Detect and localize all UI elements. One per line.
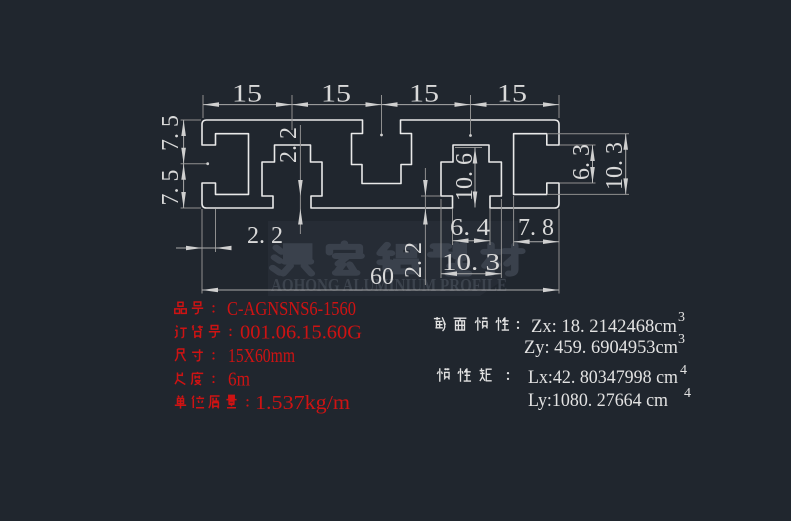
svg-text:2. 2: 2. 2 — [276, 127, 302, 163]
svg-text:2. 2: 2. 2 — [247, 223, 283, 249]
svg-text:Zx: 18. 2142468cm: Zx: 18. 2142468cm — [531, 316, 677, 337]
svg-text:001.06.15.60G: 001.06.15.60G — [240, 323, 362, 344]
svg-text:15X60mm: 15X60mm — [228, 346, 295, 367]
svg-text:10. 6: 10. 6 — [452, 153, 478, 201]
svg-text:2. 2: 2. 2 — [401, 242, 427, 278]
svg-text:3: 3 — [678, 310, 685, 325]
svg-text:3: 3 — [678, 332, 685, 347]
svg-text:4: 4 — [680, 363, 687, 378]
svg-text:C-AGNSNS6-1560: C-AGNSNS6-1560 — [227, 299, 356, 320]
svg-text:Ly:1080. 27664 cm: Ly:1080. 27664 cm — [528, 390, 668, 411]
svg-text:7. 5: 7. 5 — [158, 170, 184, 206]
svg-text:7. 8: 7. 8 — [518, 215, 554, 241]
svg-text:6m: 6m — [228, 370, 250, 391]
svg-text:10. 3: 10. 3 — [602, 142, 628, 190]
svg-text:15: 15 — [232, 81, 262, 108]
svg-text:15: 15 — [497, 81, 527, 108]
svg-text:6. 4: 6. 4 — [450, 215, 490, 241]
svg-text:7. 5: 7. 5 — [158, 115, 184, 151]
svg-text:15: 15 — [321, 81, 351, 108]
svg-text:6. 3: 6. 3 — [569, 144, 595, 180]
svg-text:Lx:42. 80347998 cm: Lx:42. 80347998 cm — [528, 367, 678, 388]
svg-text:Zy: 459. 6904953cm: Zy: 459. 6904953cm — [524, 337, 678, 358]
svg-text:10. 3: 10. 3 — [442, 250, 500, 276]
svg-text:4: 4 — [684, 386, 691, 401]
svg-text:60: 60 — [370, 264, 394, 290]
svg-text:1.537kg/m: 1.537kg/m — [255, 393, 350, 414]
svg-text:15: 15 — [409, 81, 439, 108]
